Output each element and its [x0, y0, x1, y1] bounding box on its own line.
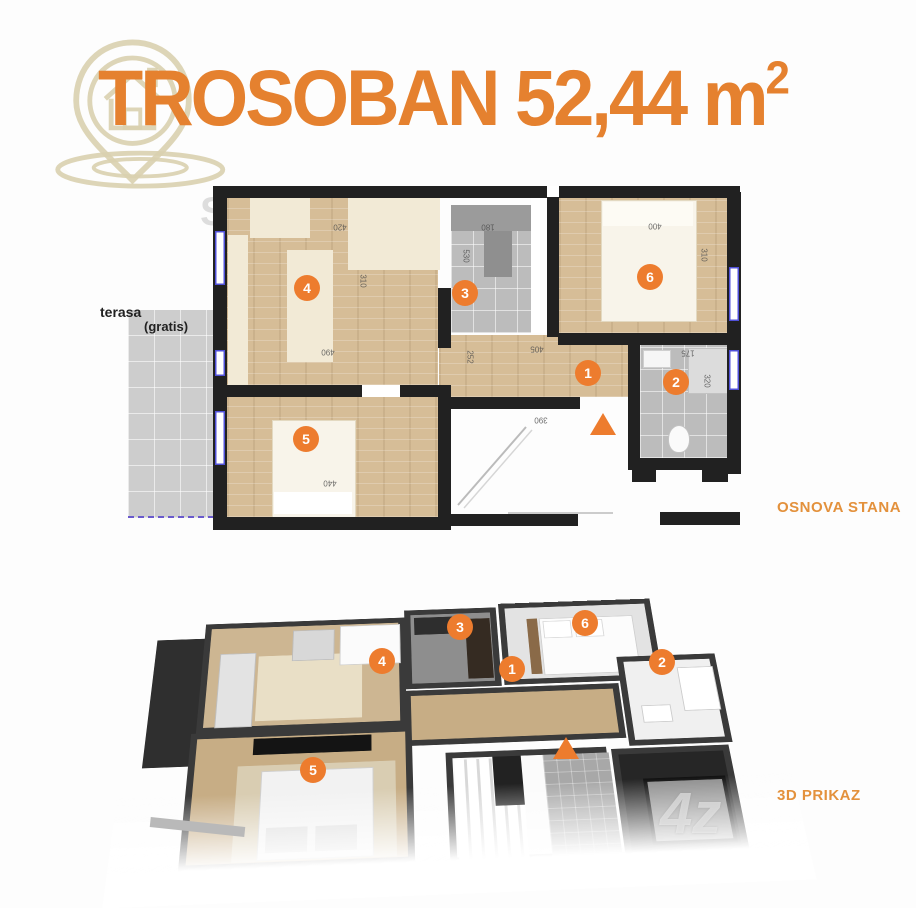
- wall-stub-2: [702, 470, 728, 482]
- dining-table: [348, 198, 440, 270]
- room-marker-2d-4: 4: [294, 275, 320, 301]
- wall-bottom-right: [660, 512, 740, 525]
- dimension-label: 440: [323, 479, 336, 488]
- room-marker-3d-5: 5: [300, 757, 326, 783]
- room-marker-2d-1: 1: [575, 360, 601, 386]
- room-marker-3d-1: 1: [499, 656, 525, 682]
- dimension-label: 175: [681, 349, 694, 358]
- dimension-label: 490: [321, 348, 334, 357]
- watermark-brand: 4z: [660, 780, 721, 847]
- room-3d-bathroom: [616, 653, 732, 745]
- dimension-label: 310: [359, 274, 368, 287]
- plan-3d-view: [145, 597, 765, 898]
- label-3d-prikaz: 3D PRIKAZ: [777, 787, 861, 804]
- cabinet: [250, 198, 310, 238]
- dimension-label: 320: [703, 374, 712, 387]
- sofa: [228, 235, 248, 385]
- pillows-room5: [274, 492, 352, 514]
- wall-stub-1: [632, 470, 656, 482]
- room-marker-2d-2: 2: [663, 369, 689, 395]
- terrace-area: [128, 310, 214, 518]
- page-title: TROSOBAN 52,44 m2: [98, 52, 790, 143]
- room-marker-3d-4: 4: [369, 648, 395, 674]
- room-marker-3d-2: 2: [649, 649, 675, 675]
- dimension-label: 405: [530, 345, 543, 354]
- room-marker-2d-6: 6: [637, 264, 663, 290]
- room-marker-3d-6: 6: [572, 610, 598, 636]
- bathroom-sink: [643, 350, 671, 368]
- wall-kitchen-room6: [547, 197, 559, 337]
- wall-stairs-bottom: [448, 514, 578, 526]
- window-room6: [729, 267, 739, 321]
- dimension-label: 400: [648, 222, 661, 231]
- room-marker-2d-3: 3: [452, 280, 478, 306]
- window-room5: [215, 411, 225, 465]
- label-osnova-stana: OSNOVA STANA: [777, 499, 901, 516]
- room-marker-3d-3: 3: [447, 614, 473, 640]
- window-room4: [215, 231, 225, 285]
- wall-room4-room5: [227, 385, 439, 397]
- wall-bathroom-bottom: [628, 458, 740, 470]
- wall-room6-hall: [558, 333, 740, 345]
- wall-hall-stairs: [448, 397, 580, 409]
- wall-bottom-left: [213, 517, 446, 530]
- terrace-boundary-line: [128, 516, 214, 518]
- terrace-label-gratis: (gratis): [144, 319, 188, 334]
- entrance-arrow-2d: [590, 413, 616, 435]
- window-hall-left: [215, 350, 225, 376]
- rug: [287, 250, 333, 362]
- floorplan-poster: TROSOBAN 52,44 m2 S terasa (gratis): [0, 0, 916, 900]
- window-bathroom: [729, 350, 739, 390]
- dimension-label: 530: [462, 249, 471, 262]
- dimension-label: 390: [534, 416, 547, 425]
- dimension-label: 180: [481, 223, 494, 232]
- room-3d-living: [196, 618, 407, 734]
- terrace-label: terasa: [100, 304, 141, 320]
- dimension-label: 420: [333, 223, 346, 232]
- wall-bathroom-left: [628, 333, 640, 470]
- kitchen-appliance: [484, 231, 512, 277]
- toilet: [668, 425, 690, 453]
- room-marker-2d-5: 5: [293, 426, 319, 452]
- wall-room4-kitchen: [438, 288, 451, 348]
- wall-top: [213, 186, 740, 198]
- room-3d-hallway: [404, 683, 626, 746]
- entrance-arrow-3d: [553, 737, 579, 759]
- dimension-label: 310: [700, 248, 709, 261]
- dimension-label: 252: [466, 350, 475, 363]
- kitchen-passage: [531, 198, 547, 333]
- title-superscript: 2: [766, 52, 790, 104]
